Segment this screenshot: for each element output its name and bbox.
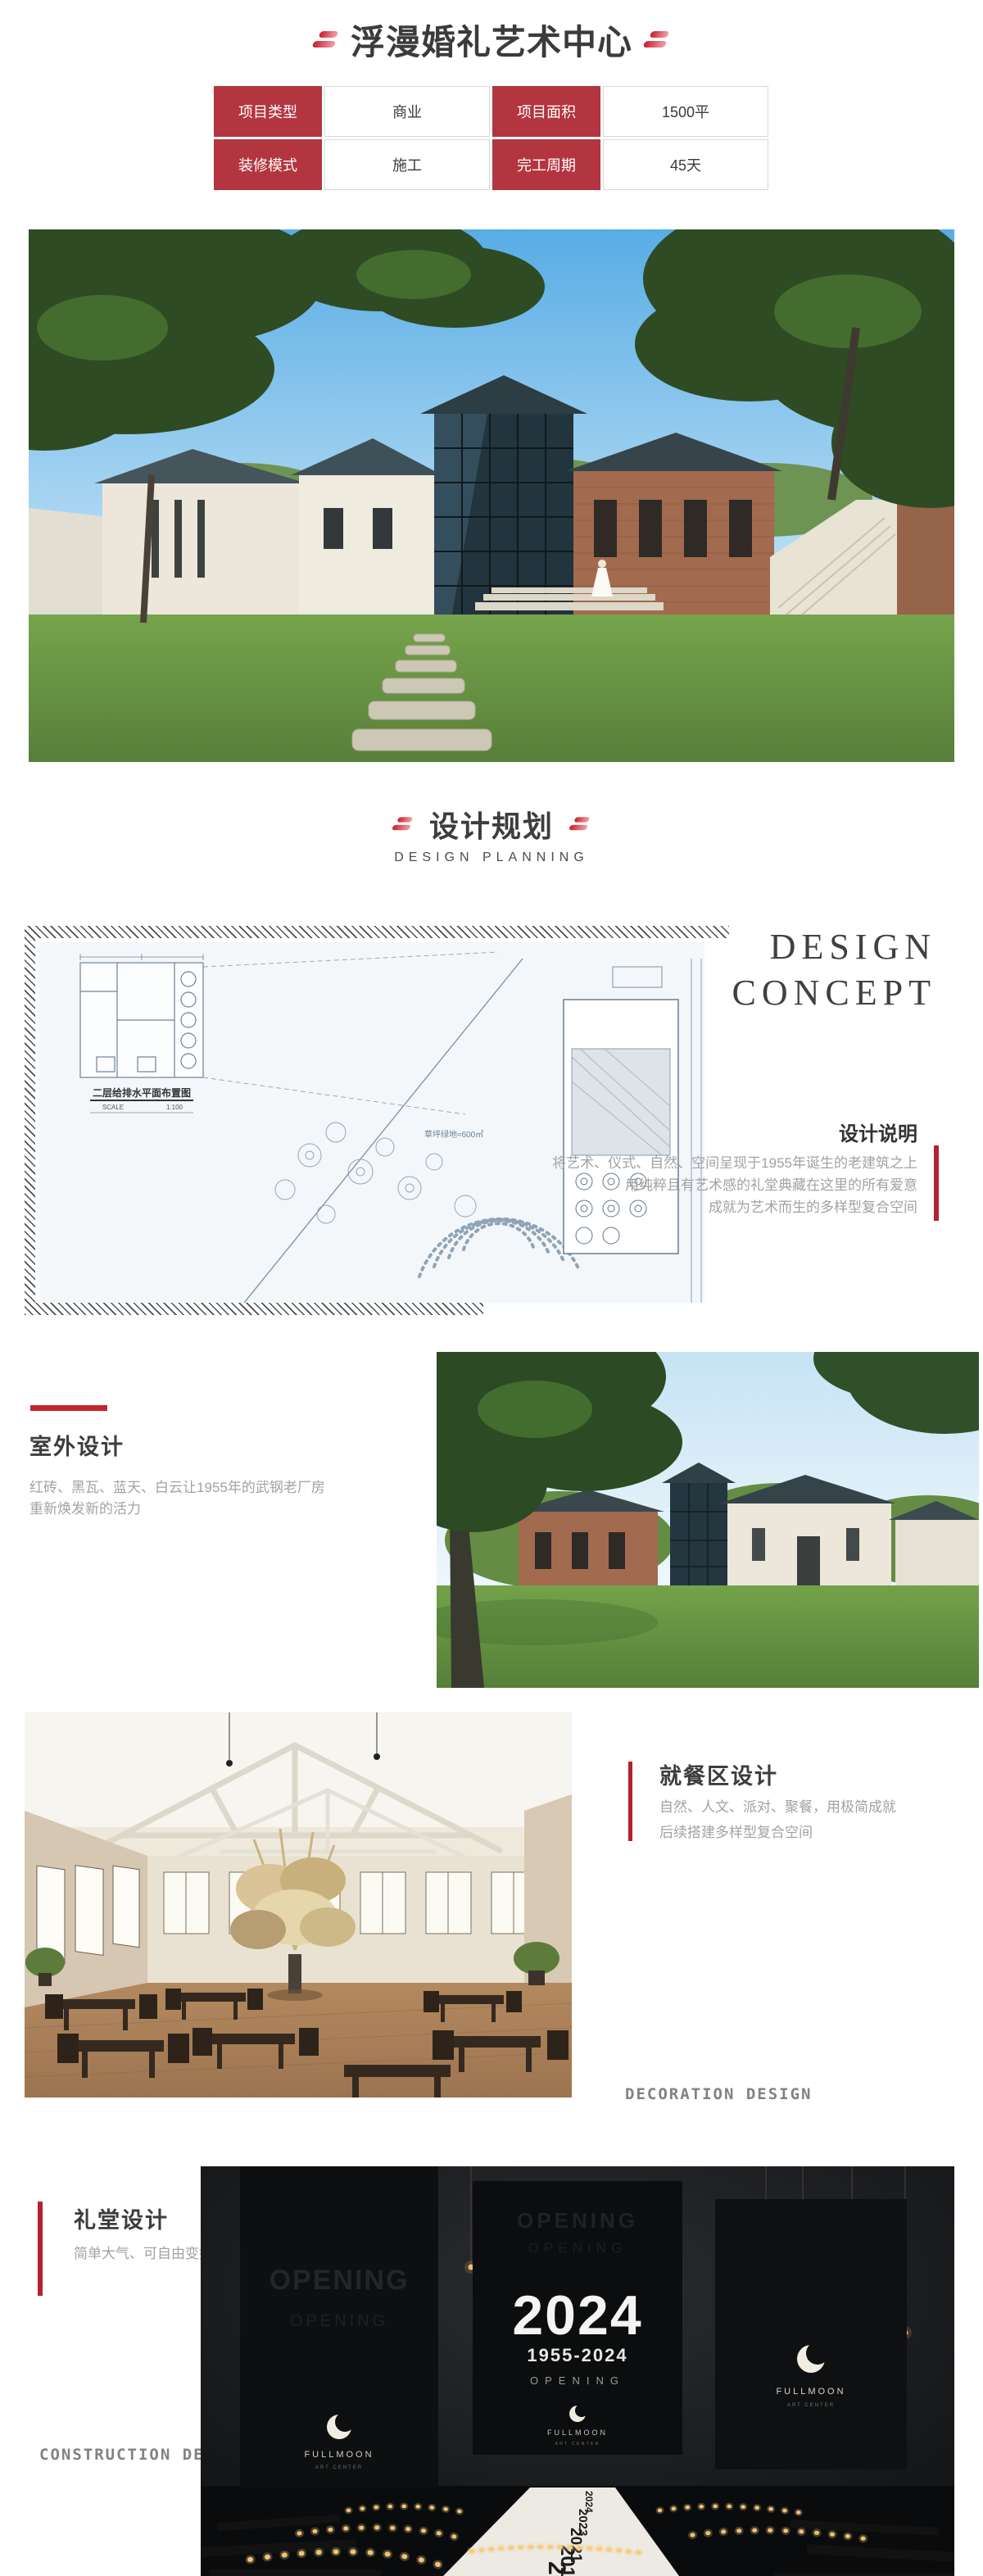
dining-line: 自然、人文、派对、聚餐，用极简成就 xyxy=(659,1794,896,1820)
info-label: 项目类型 xyxy=(214,86,322,137)
design-notes-line: 用纯粹且有艺术感的礼堂典藏在这里的所有爱意 xyxy=(0,1174,917,1196)
dining-line: 后续搭建多样型复合空间 xyxy=(659,1820,896,1845)
plan-scale-label: SCALE xyxy=(102,1104,124,1111)
page-title: 浮漫婚礼艺术中心 xyxy=(351,15,632,65)
left-banner: OPENING OPENING FULLMOON ART CENTER xyxy=(240,2166,438,2488)
dining-photo xyxy=(25,1712,572,2098)
mid-building xyxy=(291,438,442,623)
decoration-design-watermark: DECORATION DESIGN xyxy=(625,2085,812,2103)
brand-name: FULLMOON xyxy=(547,2429,608,2437)
red-accent-bar xyxy=(30,1405,107,1411)
outdoor-title: 室外设计 xyxy=(29,1429,125,1461)
banner-year-range: 1955-2024 xyxy=(527,2345,627,2365)
page-header: 浮漫婚礼艺术中心 xyxy=(0,15,983,65)
plan-scale-value: 1:100 xyxy=(166,1104,183,1111)
ceiling xyxy=(25,1712,572,1827)
right-banner: FULLMOON ART CENTER xyxy=(715,2199,907,2469)
section-subtitle: DESIGN PLANNING xyxy=(0,850,983,865)
section-title: 设计规划 xyxy=(429,803,554,846)
plan-frame-bottom xyxy=(25,1303,483,1315)
design-notes-paragraph: 将艺术、仪式、自然、空间呈现于1955年诞生的老建筑之上 用纯粹且有艺术感的礼堂… xyxy=(0,1152,917,1218)
center-banner: OPENING OPENING 2024 1955-2024 OPENING F… xyxy=(473,2181,682,2455)
concept-word-2: CONCEPT xyxy=(0,970,936,1016)
info-label: 项目面积 xyxy=(492,86,600,137)
banner-ghost-text: OPENING xyxy=(528,2240,627,2256)
outdoor-line: 红砖、黑瓦、蓝天、白云让1955年的武钢老厂房 xyxy=(29,1477,325,1499)
info-label: 完工周期 xyxy=(492,139,600,190)
hero-exterior-photo xyxy=(29,229,954,762)
outdoor-text: 红砖、黑瓦、蓝天、白云让1955年的武钢老厂房 重新焕发新的活力 xyxy=(29,1477,325,1520)
concept-word-1: DESIGN xyxy=(0,924,936,970)
red-equals-icon xyxy=(392,816,414,832)
red-equals-icon xyxy=(644,30,670,50)
brand-subtitle: ART CENTER xyxy=(787,2403,835,2408)
banner-opening-text: OPENING xyxy=(530,2374,625,2387)
info-value: 商业 xyxy=(324,86,490,137)
red-accent-bar xyxy=(628,1762,632,1841)
glass-atrium xyxy=(662,1463,736,1585)
outdoor-photo xyxy=(437,1352,979,1688)
back-wall xyxy=(147,1856,572,1983)
banner-ghost-text: OPENING xyxy=(270,2265,410,2296)
hall-title: 礼堂设计 xyxy=(74,2202,169,2234)
red-equals-icon xyxy=(569,816,591,832)
banner-ghost-text: OPENING xyxy=(517,2208,638,2233)
brand-name: FULLMOON xyxy=(776,2387,845,2397)
banner-year: 2024 xyxy=(512,2284,642,2347)
info-label: 装修模式 xyxy=(214,139,322,190)
dining-title: 就餐区设计 xyxy=(659,1758,778,1790)
brand-subtitle: ART CENTER xyxy=(315,2465,363,2470)
info-value: 1500平 xyxy=(603,86,768,137)
banner-ghost-text: OPENING xyxy=(290,2312,388,2330)
outdoor-line: 重新焕发新的活力 xyxy=(29,1499,325,1520)
carpet-year: 2018 xyxy=(543,2561,570,2576)
glass-atrium xyxy=(420,375,587,623)
red-equals-icon xyxy=(313,30,339,50)
info-value: 45天 xyxy=(603,139,768,190)
design-notes-line: 成就为艺术而生的多样型复合空间 xyxy=(0,1196,917,1218)
brand-name: FULLMOON xyxy=(304,2450,374,2460)
design-concept-title: DESIGN CONCEPT xyxy=(0,924,936,1016)
design-notes-label: 设计说明 xyxy=(0,1118,917,1146)
red-accent-bar xyxy=(934,1145,939,1221)
entry-steps xyxy=(475,587,664,610)
design-notes-line: 将艺术、仪式、自然、空间呈现于1955年诞生的老建筑之上 xyxy=(0,1152,917,1174)
project-info-table: 项目类型 商业 项目面积 1500平 装修模式 施工 完工周期 45天 xyxy=(214,86,768,190)
info-value: 施工 xyxy=(324,139,490,190)
hall-photo: OPENING OPENING FULLMOON ART CENTER OPEN… xyxy=(201,2166,954,2576)
design-planning-heading: 设计规划 DESIGN PLANNING xyxy=(0,803,983,865)
plan-caption: 二层给排水平面布置图 xyxy=(93,1086,191,1099)
brand-subtitle: ART CENTER xyxy=(555,2442,600,2447)
red-accent-bar xyxy=(38,2202,43,2296)
project-case-page: 浮漫婚礼艺术中心 项目类型 商业 项目面积 1500平 装修模式 施工 完工周期… xyxy=(0,0,983,2576)
dining-text: 自然、人文、派对、聚餐，用极简成就 后续搭建多样型复合空间 xyxy=(659,1794,896,1845)
